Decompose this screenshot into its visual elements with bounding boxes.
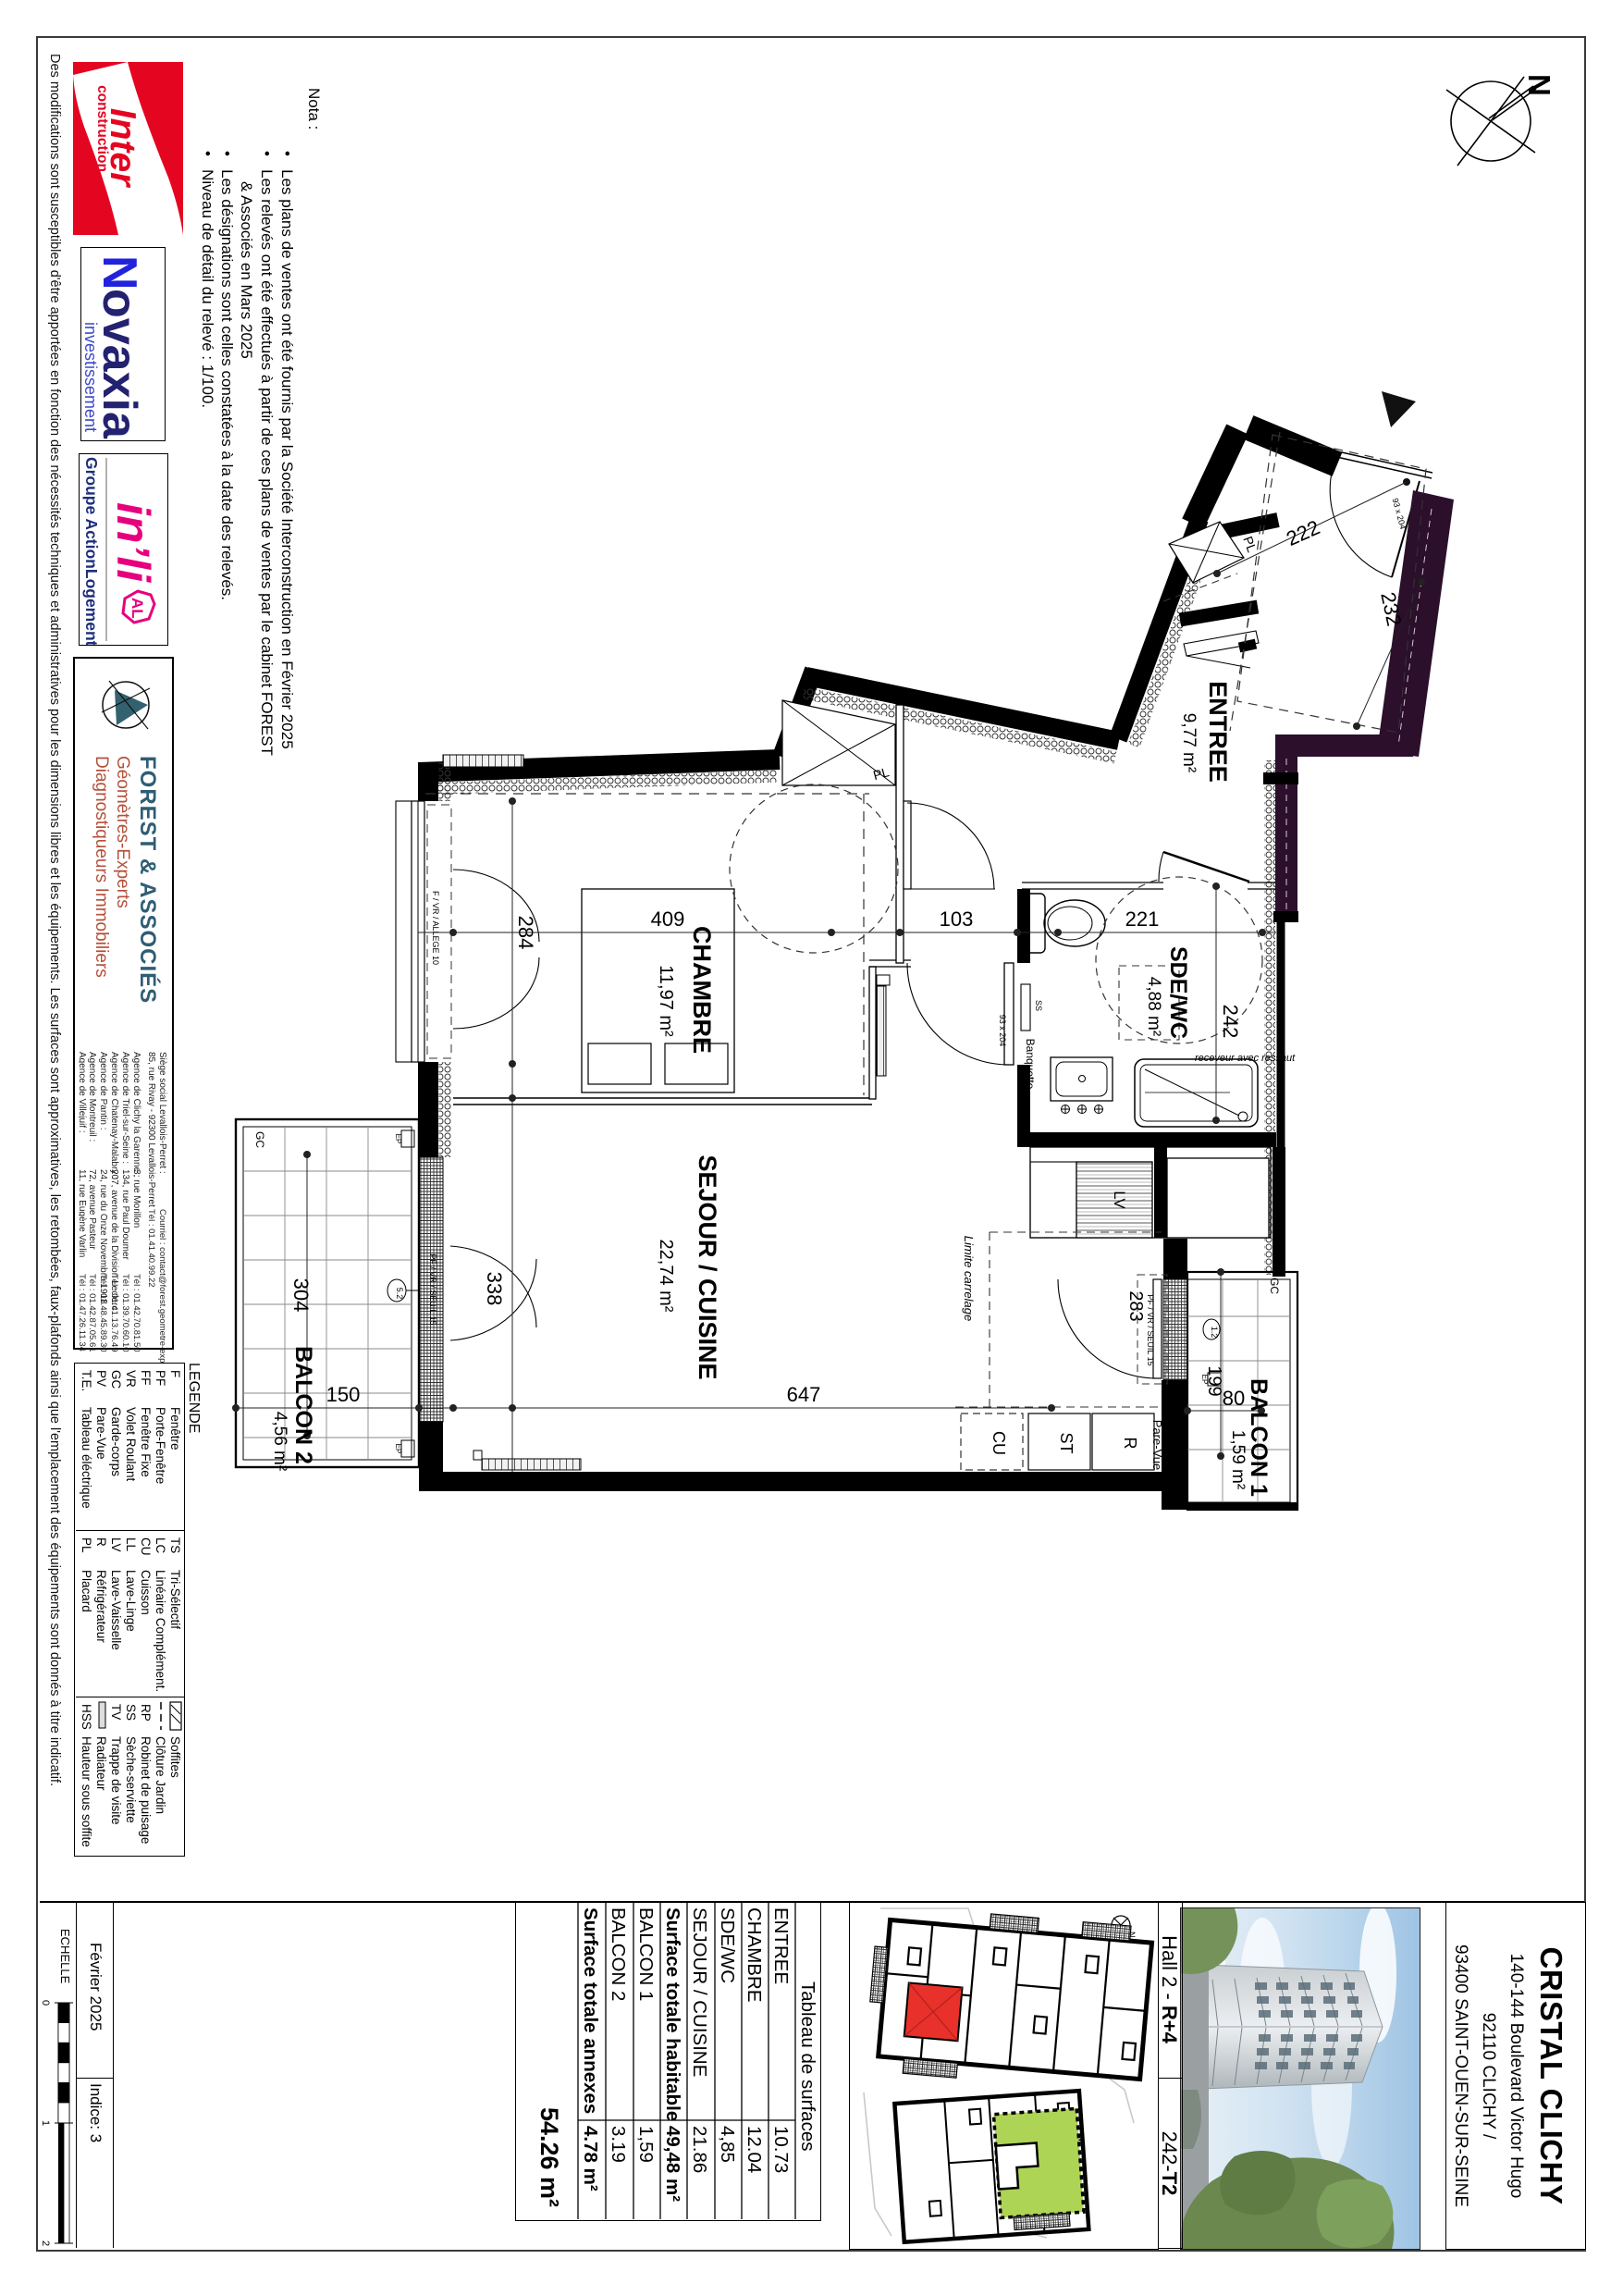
- svg-text:LV: LV: [1111, 1191, 1128, 1209]
- svg-text:93 x 204: 93 x 204: [998, 1015, 1007, 1047]
- svg-text:284: 284: [514, 916, 537, 950]
- svg-text:1,59 m²: 1,59 m²: [1228, 1430, 1248, 1489]
- svg-text:409: 409: [651, 907, 685, 931]
- svg-text:F / VR / ALLEGE 10: F / VR / ALLEGE 10: [431, 891, 440, 965]
- svg-text:4,56 m²: 4,56 m²: [270, 1412, 289, 1471]
- svg-text:SS: SS: [1034, 1000, 1043, 1011]
- svg-text:4,88 m²: 4,88 m²: [1144, 977, 1163, 1036]
- svg-text:EP: EP: [394, 1444, 402, 1454]
- svg-text:93 x 204: 93 x 204: [1391, 497, 1408, 530]
- svg-text:PL: PL: [1240, 535, 1260, 555]
- svg-text:EP: EP: [394, 1134, 402, 1144]
- svg-text:Limite carrelage: Limite carrelage: [962, 1236, 976, 1322]
- svg-text:11,97 m²: 11,97 m²: [656, 965, 676, 1037]
- svg-text:22,74 m²: 22,74 m²: [656, 1240, 676, 1313]
- svg-text:CHAMBRE: CHAMBRE: [688, 926, 716, 1054]
- svg-text:SEJOUR / CUISINE: SEJOUR / CUISINE: [694, 1154, 721, 1379]
- svg-text:PL: PL: [871, 764, 891, 783]
- svg-text:222: 222: [1283, 515, 1323, 550]
- svg-text:242: 242: [1219, 1005, 1242, 1039]
- svg-text:232: 232: [1376, 590, 1406, 628]
- svg-text:9,77 m²: 9,77 m²: [1179, 713, 1199, 772]
- svg-text:80: 80: [1223, 1387, 1245, 1410]
- svg-text:GC: GC: [253, 1131, 266, 1148]
- svg-text:283: 283: [1125, 1290, 1146, 1321]
- svg-text:CU: CU: [990, 1431, 1008, 1455]
- svg-text:R: R: [1121, 1438, 1139, 1450]
- svg-text:Banquette: Banquette: [1024, 1039, 1037, 1090]
- svg-text:5.2: 5.2: [395, 1288, 404, 1300]
- svg-text:304: 304: [289, 1278, 313, 1313]
- svg-text:150: 150: [326, 1383, 361, 1406]
- svg-text:221: 221: [1125, 907, 1160, 931]
- svg-text:PF / VR / SEUIL 15: PF / VR / SEUIL 15: [428, 1253, 437, 1325]
- svg-text:ENTREE: ENTREE: [1204, 681, 1232, 783]
- svg-text:647: 647: [787, 1383, 821, 1406]
- svg-text:ST: ST: [1057, 1432, 1076, 1453]
- svg-text:BALCON 2: BALCON 2: [290, 1346, 316, 1464]
- svg-text:SDE/WC: SDE/WC: [1165, 946, 1191, 1039]
- svg-text:PF / VR / SEUIL 15: PF / VR / SEUIL 15: [1146, 1294, 1155, 1365]
- svg-text:338: 338: [483, 1272, 506, 1306]
- svg-text:BALCON 1: BALCON 1: [1246, 1378, 1272, 1497]
- svg-text:1.2: 1.2: [1210, 1327, 1219, 1339]
- svg-text:Pare-Vue: Pare-Vue: [1150, 1420, 1164, 1470]
- svg-text:EP: EP: [1200, 1375, 1209, 1385]
- svg-text:GC: GC: [1268, 1278, 1281, 1294]
- svg-text:T.E.: T.E.: [1187, 610, 1211, 625]
- svg-text:receveur avec ressaut: receveur avec ressaut: [1195, 1053, 1296, 1064]
- svg-text:103: 103: [940, 907, 974, 931]
